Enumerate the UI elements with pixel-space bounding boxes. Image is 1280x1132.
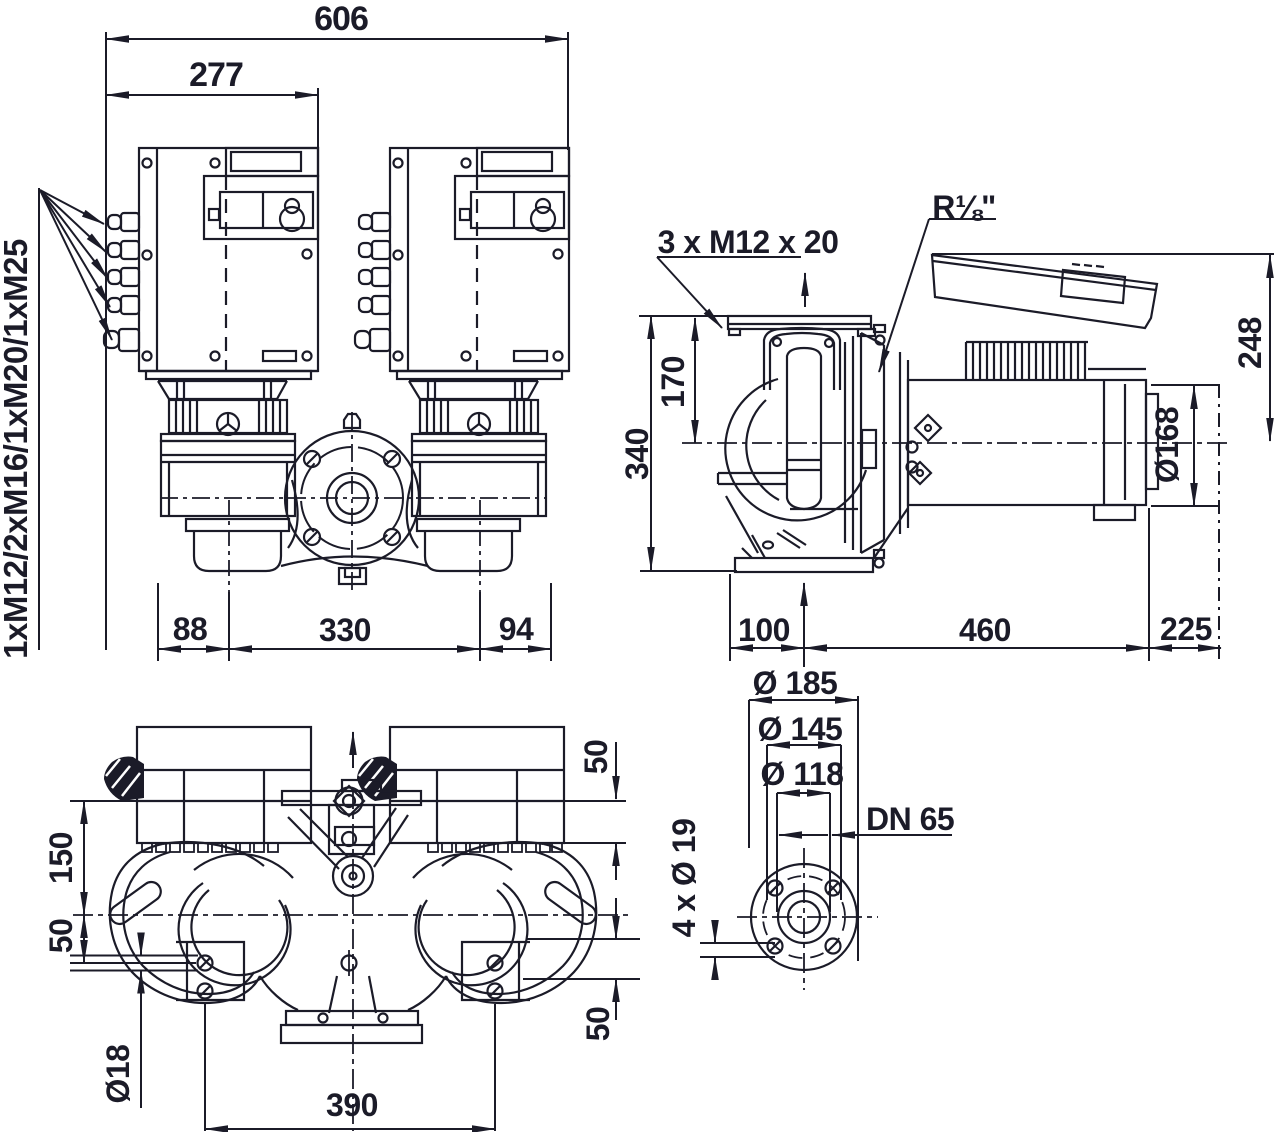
svg-text:606: 606 xyxy=(314,0,368,38)
svg-text:340: 340 xyxy=(619,428,655,480)
svg-text:Ø 118: Ø 118 xyxy=(761,756,844,792)
svg-text:Ø 185: Ø 185 xyxy=(753,665,838,701)
svg-text:50: 50 xyxy=(43,919,79,954)
svg-text:88: 88 xyxy=(173,611,208,647)
svg-text:277: 277 xyxy=(189,56,243,94)
svg-text:50: 50 xyxy=(578,740,614,775)
svg-text:Ø 145: Ø 145 xyxy=(758,711,843,747)
svg-text:225: 225 xyxy=(1160,611,1212,647)
svg-text:460: 460 xyxy=(959,612,1011,648)
svg-text:1xM12/2xM16/1xM20/1xM25: 1xM12/2xM16/1xM20/1xM25 xyxy=(0,239,34,659)
svg-text:3 x M12 x 20: 3 x M12 x 20 xyxy=(658,224,839,260)
svg-text:248: 248 xyxy=(1232,317,1268,369)
svg-text:50: 50 xyxy=(580,1007,616,1042)
svg-text:DN 65: DN 65 xyxy=(866,801,954,837)
svg-text:Ø168: Ø168 xyxy=(1149,407,1185,483)
svg-text:Ø18: Ø18 xyxy=(100,1045,136,1104)
svg-text:4 x Ø 19: 4 x Ø 19 xyxy=(666,819,702,938)
svg-text:R⅛": R⅛" xyxy=(932,189,995,225)
svg-text:390: 390 xyxy=(326,1087,378,1123)
svg-text:170: 170 xyxy=(655,356,691,408)
svg-text:100: 100 xyxy=(738,612,790,648)
svg-text:150: 150 xyxy=(43,832,79,884)
svg-text:94: 94 xyxy=(499,611,534,647)
svg-text:330: 330 xyxy=(319,612,371,648)
